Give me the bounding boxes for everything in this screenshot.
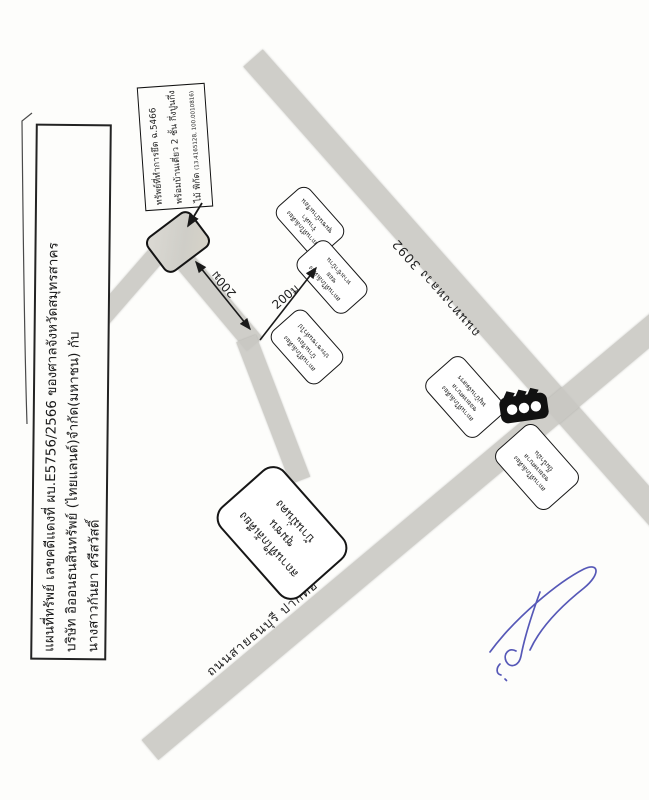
gps-coordinates: (13.4165128, 100.0010816) (189, 91, 201, 170)
landmark-box: สถานที่ใกล้เคียง ซอยเทศบาล หมู่บ้านจัดสร… (421, 352, 509, 442)
margin-bracket-line (22, 113, 32, 424)
scanned-map-page: ถนนทางหลวง 3092 ถนนสายธนบุรี ปากท่อ 200ม… (0, 0, 649, 800)
case-title-line: นางสาวกันยา ศรีสวัสดิ์ (82, 128, 109, 652)
case-title-box: แผนที่ทรัพย์ เลขคดีแดงที่ ผบ.E5756/2566 … (30, 124, 112, 661)
landmark-box: สถานที่ใกล้เคียง บ้านเรือน ประชาชนทั่วไป (267, 306, 348, 389)
signature-ink (490, 567, 596, 681)
seized-property-note-box: ทรัพย์ที่ทำการยึด ฉ.5466 พร้อมบ้านเดี่ยว… (137, 83, 213, 211)
seized-property-note-text: ทรัพย์ที่ทำการยึด ฉ.5466 พร้อมบ้านเดี่ยว… (143, 86, 211, 206)
case-title-text: แผนที่ทรัพย์ เลขคดีแดงที่ ผบ.E5756/2566 … (38, 128, 109, 653)
